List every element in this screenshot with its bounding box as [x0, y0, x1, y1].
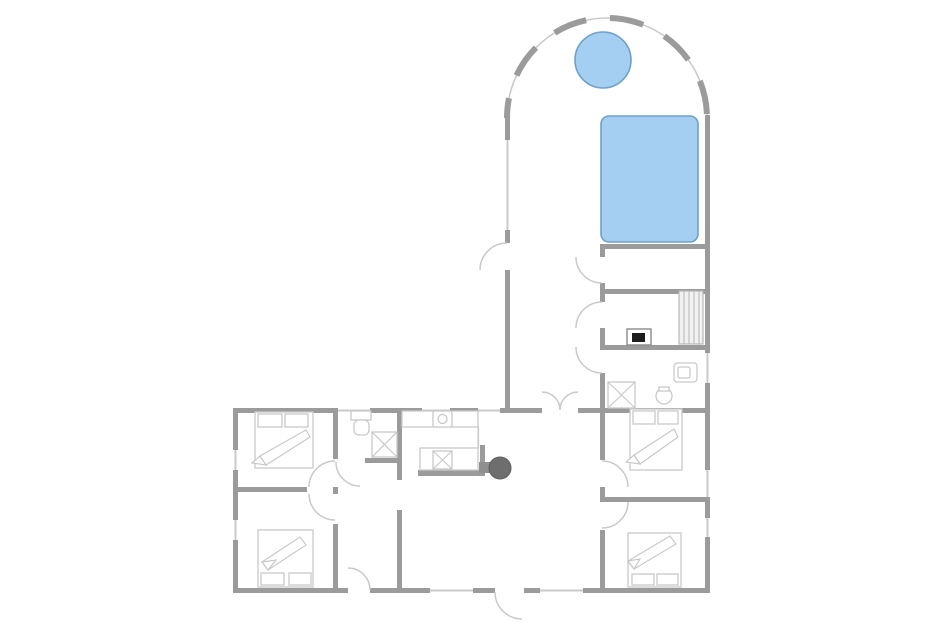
pool-left-wall-lower [505, 270, 510, 408]
corridor-east-wall-stub2 [600, 283, 605, 302]
door-arc-bedroom-ne [602, 461, 628, 487]
vestibule-east-wall [397, 510, 402, 593]
corridor-east-wall-stub3 [600, 328, 605, 347]
door-arc-sauna [576, 302, 602, 328]
south-window1 [430, 590, 473, 592]
swimming-pool [601, 116, 698, 242]
sauna-heater-core [632, 333, 645, 342]
hall-west-wall-upper [333, 408, 338, 459]
door-arc-changing-room [576, 257, 602, 283]
bedrooms-west-wall-lower [600, 530, 605, 593]
pool-left-wall-upper [505, 115, 510, 140]
door-arc-double-left [542, 392, 560, 410]
sauna-south-wall [600, 345, 710, 350]
pool-left-wall-window [507, 140, 509, 230]
hall-west-wall-stub [333, 487, 338, 494]
left-wall-seg3 [233, 540, 238, 593]
floor-plan-drawing [0, 0, 950, 634]
door-arc-terrace [348, 568, 370, 590]
bedrooms-west-wall-upper [600, 373, 605, 460]
right-wall-lower [705, 537, 710, 593]
right-wall-window-bedroom2 [707, 518, 709, 537]
bed-ne-pillow-right [658, 411, 678, 424]
wing-north-wall-seg4 [500, 408, 542, 413]
bed-nw-pillow-left [258, 414, 282, 427]
bedroom-divider-right [603, 497, 710, 502]
kitchen-counter-edge [478, 427, 480, 448]
right-wall-window-bedroom1 [707, 470, 709, 497]
kitchen-knee-wall-south [418, 470, 485, 476]
right-wall-mid [705, 383, 710, 470]
door-arc-bedroom-se [602, 502, 628, 528]
hall-toilet-bowl [354, 420, 369, 435]
hall-toilet-cistern [351, 411, 371, 420]
hot-tub [575, 32, 631, 88]
right-wall-upper [705, 115, 710, 353]
wing-north-window3 [478, 410, 500, 412]
bed-ne-pillow-left [633, 411, 655, 424]
pool-room-south-wall [600, 244, 710, 249]
south-wall-seg3 [473, 588, 495, 593]
floor-plan [0, 0, 950, 634]
door-arc-pool-entry [480, 243, 507, 270]
bed-sw-pillow-left [261, 573, 284, 585]
bed-se-pillow-left [632, 574, 654, 585]
door-arc-bathroom [576, 347, 602, 373]
bed-se-pillow-right [657, 574, 678, 585]
pool-left-wall-stub [505, 230, 510, 243]
bathroom-sink-tap [659, 387, 669, 391]
bathroom-toilet-seat [678, 367, 690, 378]
door-arc-double-right [560, 392, 578, 410]
south-window2 [540, 590, 583, 592]
hall-west-wall-lower [333, 524, 338, 593]
left-wall-window2 [235, 520, 237, 540]
south-wall-seg1 [233, 588, 348, 593]
wood-stove [489, 457, 511, 479]
bathroom-hall-south-wall [365, 458, 402, 463]
bed-sw-pillow-right [289, 573, 311, 585]
left-wall-seg1 [233, 408, 238, 450]
bed-nw-pillow-right [285, 414, 308, 427]
door-arc-hall-bathroom [336, 462, 360, 486]
corridor-east-wall-stub1 [600, 244, 605, 257]
left-wall-window1 [235, 450, 237, 470]
door-arc-main-entrance [495, 592, 522, 619]
door-arc-bedroom-sw [309, 494, 335, 520]
bedroom-divider-left [233, 487, 307, 492]
right-wall-window-bath [707, 353, 709, 383]
south-wall-seg4 [524, 588, 540, 593]
kitchen-sink-drain [438, 415, 447, 424]
left-wall-seg2 [233, 470, 238, 520]
south-wall-seg5 [583, 588, 710, 593]
kitchen-west-wall [397, 408, 402, 480]
